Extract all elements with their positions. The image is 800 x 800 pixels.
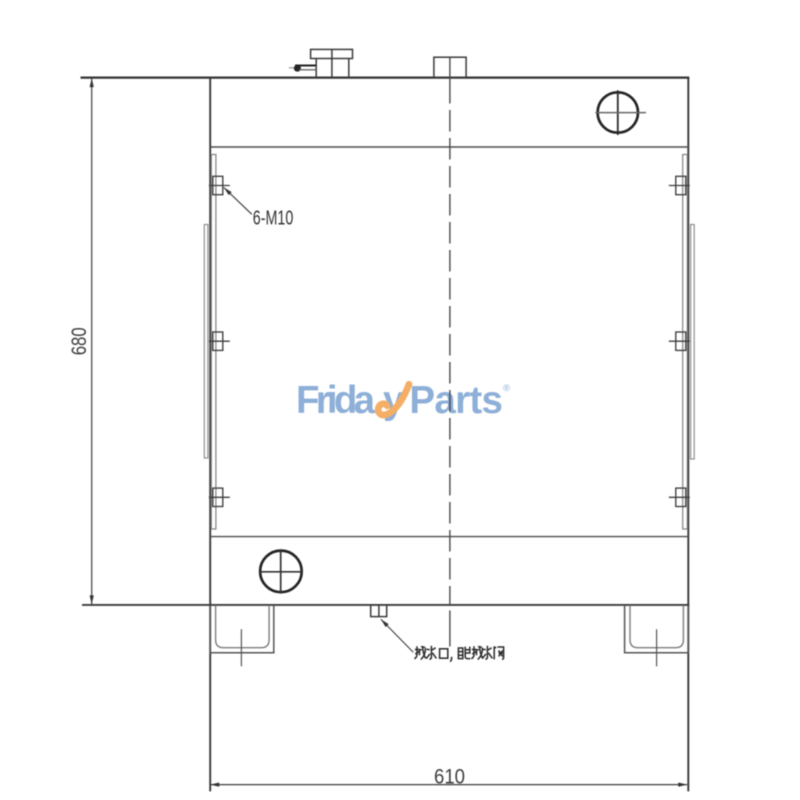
svg-text:Parts: Parts (409, 379, 503, 422)
svg-text:®: ® (503, 383, 510, 394)
svg-text:Frida: Frida (296, 379, 376, 422)
svg-text:680: 680 (68, 327, 91, 355)
svg-text:610: 610 (434, 764, 465, 788)
svg-text:6-M10: 6-M10 (253, 207, 293, 229)
